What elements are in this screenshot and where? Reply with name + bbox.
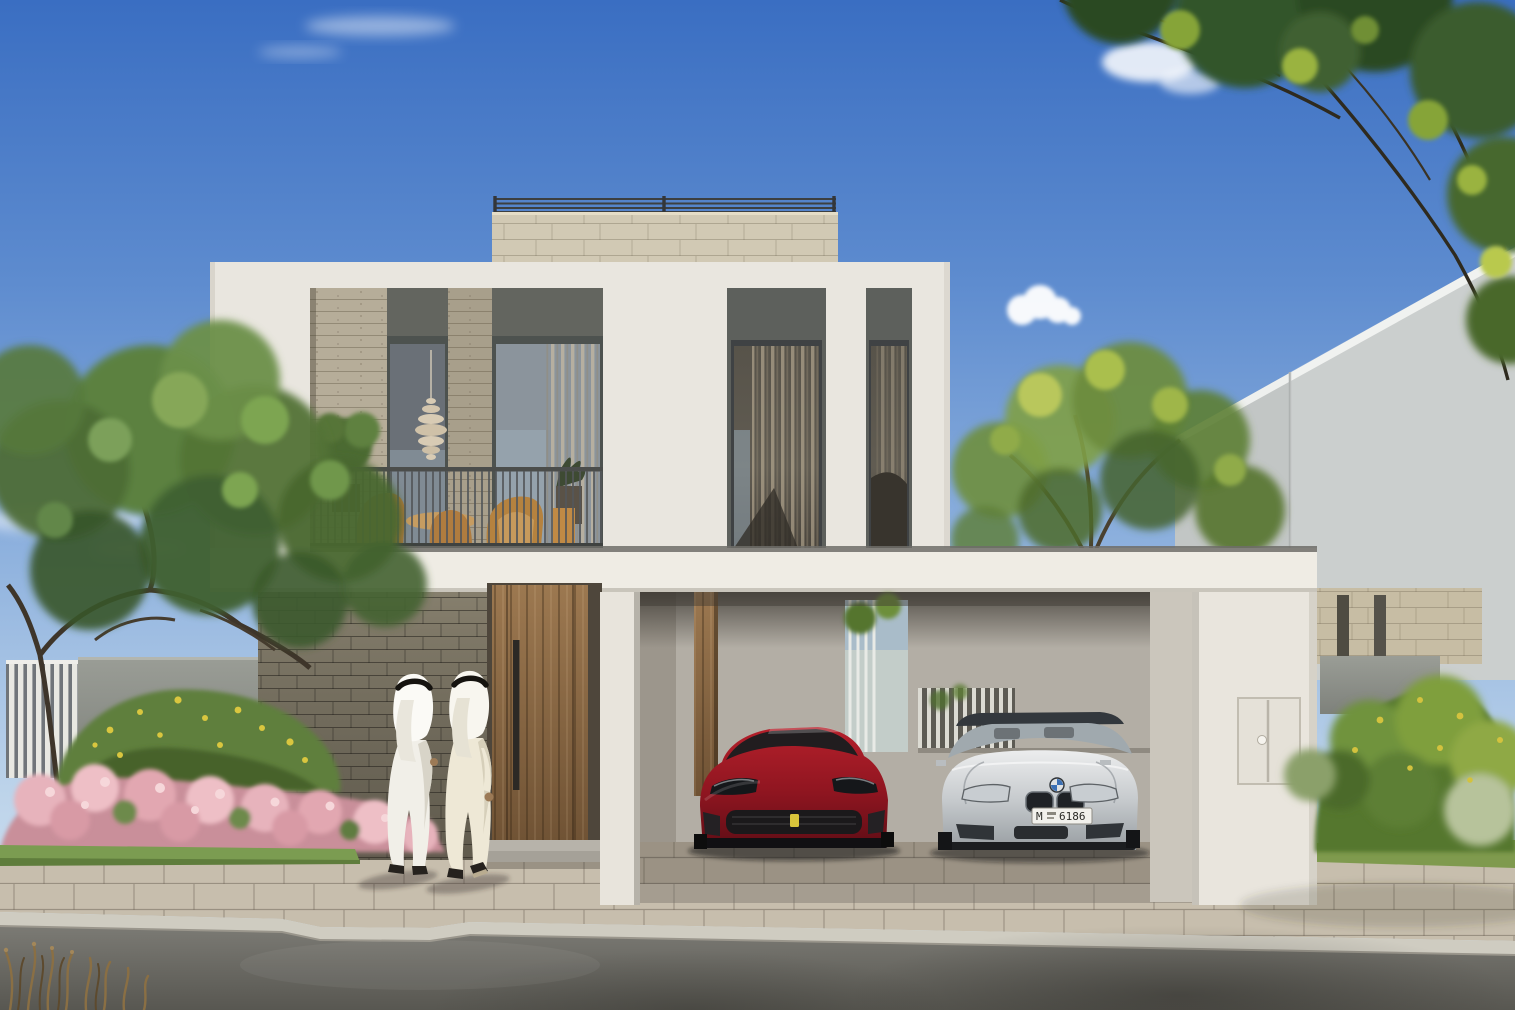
carport: M 6186 (600, 592, 1317, 905)
entry-door (476, 583, 612, 869)
door-handle (513, 640, 520, 790)
roof-stone-volume (492, 212, 838, 264)
upper-window-left (727, 288, 826, 548)
render-canvas: M 6186 (0, 0, 1515, 1010)
door-step-upper (481, 840, 607, 851)
neighbour-stone-facade (1317, 588, 1482, 664)
villa-exterior-render: M 6186 (0, 0, 1515, 1010)
bmw-headlight-right (1070, 784, 1118, 802)
carport-rear-opening (844, 593, 908, 752)
bmw-roundel (1050, 778, 1064, 792)
carport-wood-pillar (694, 592, 718, 796)
ferrari-badge (790, 814, 799, 827)
utility-panel-knob (1258, 736, 1267, 745)
carport-left-column (600, 592, 640, 905)
carport-inner-right-column (1150, 592, 1192, 902)
right-wing-wall (1192, 592, 1317, 905)
bmw-plate-number: 6186 (1059, 810, 1086, 823)
upper-window-right (866, 288, 912, 548)
door-step-lower (476, 851, 612, 862)
bmw-plate-letter: M (1036, 810, 1043, 823)
bmw-license-plate: M 6186 (1032, 808, 1092, 824)
